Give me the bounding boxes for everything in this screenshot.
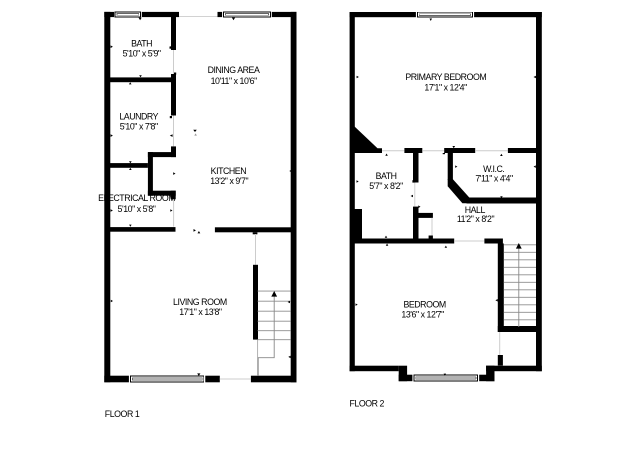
svg-text:17'1" x 12'4": 17'1" x 12'4" (424, 82, 467, 92)
svg-text:13'6" x 12'7": 13'6" x 12'7" (401, 309, 444, 319)
svg-text:LIVING ROOM: LIVING ROOM (173, 297, 227, 307)
svg-text:FLOOR 1: FLOOR 1 (105, 409, 140, 419)
svg-text:BEDROOM: BEDROOM (403, 299, 445, 309)
svg-text:ELECTRICAL ROOM: ELECTRICAL ROOM (98, 193, 175, 203)
svg-text:FLOOR 2: FLOOR 2 (350, 398, 385, 408)
svg-text:13'2" x 9'7": 13'2" x 9'7" (210, 176, 248, 186)
svg-text:11'2" x 8'2": 11'2" x 8'2" (457, 214, 495, 224)
svg-text:BATH: BATH (131, 39, 152, 49)
svg-text:DINING AREA: DINING AREA (208, 65, 260, 75)
svg-text:7'11" x 4'4": 7'11" x 4'4" (475, 174, 513, 184)
svg-text:5'10" x 7'8": 5'10" x 7'8" (120, 121, 158, 131)
svg-text:PRIMARY BEDROOM: PRIMARY BEDROOM (405, 72, 486, 82)
svg-text:17'1" x 13'8": 17'1" x 13'8" (179, 307, 222, 317)
svg-text:W.I.C.: W.I.C. (483, 164, 504, 174)
svg-text:5'7" x 8'2": 5'7" x 8'2" (369, 181, 403, 191)
svg-text:5'10" x 5'8": 5'10" x 5'8" (118, 204, 156, 214)
svg-text:BATH: BATH (376, 171, 397, 181)
svg-text:LAUNDRY: LAUNDRY (119, 111, 158, 121)
svg-text:KITCHEN: KITCHEN (211, 166, 247, 176)
svg-text:5'10" x 5'9": 5'10" x 5'9" (123, 48, 161, 58)
svg-text:10'11" x 10'6": 10'11" x 10'6" (211, 76, 258, 86)
